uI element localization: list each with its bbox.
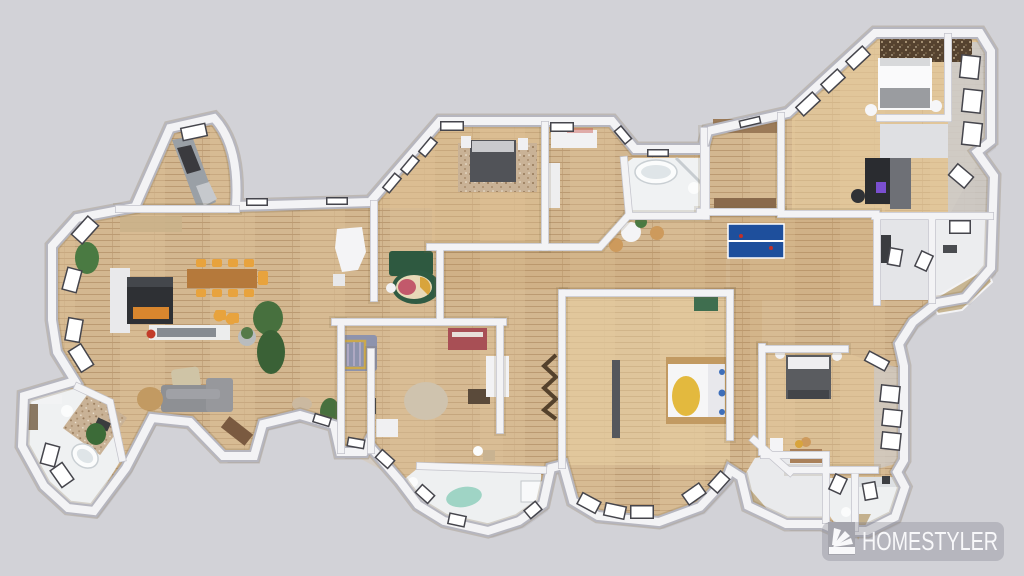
svg-text:HOMESTYLER: HOMESTYLER (862, 526, 998, 556)
